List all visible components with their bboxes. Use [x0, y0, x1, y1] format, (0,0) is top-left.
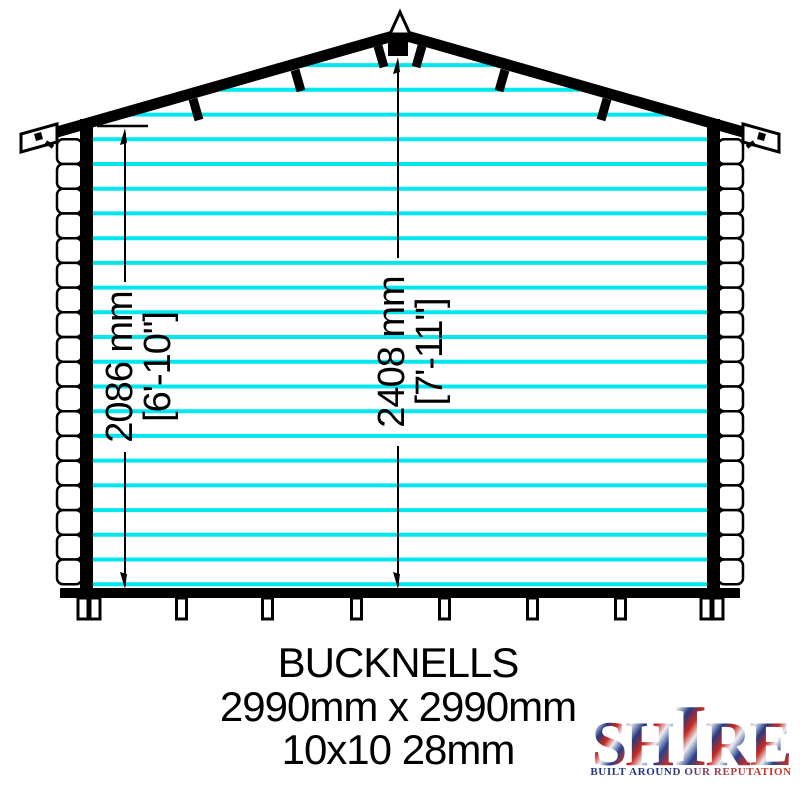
foot — [440, 598, 450, 619]
finial — [390, 12, 410, 34]
log-end — [57, 535, 82, 560]
log-end — [718, 510, 743, 535]
log-end — [718, 288, 743, 313]
log-end — [718, 461, 743, 486]
foot — [90, 598, 100, 619]
product-name: BUCKNELLS — [0, 641, 796, 685]
log-end — [718, 362, 743, 387]
log-end — [57, 164, 82, 189]
log-ends-left — [57, 139, 82, 584]
log-end — [718, 387, 743, 412]
log-end — [718, 535, 743, 560]
caption-block: BUCKNELLS 2990mm x 2990mm 10x10 28mm — [0, 641, 796, 772]
log-end — [718, 312, 743, 337]
barge-board-left — [21, 124, 57, 152]
log-end — [718, 214, 743, 239]
rafter-ticks — [193, 46, 607, 120]
ridge-height-label-mm: 2408 mm — [371, 276, 413, 427]
foot — [177, 598, 187, 619]
foot — [701, 598, 711, 619]
log-end — [718, 411, 743, 436]
log-end — [718, 189, 743, 214]
log-end — [57, 560, 82, 585]
foot — [78, 598, 88, 619]
log-end — [718, 139, 743, 164]
product-size-metric: 2990mm x 2990mm — [0, 685, 796, 729]
log-end — [57, 510, 82, 535]
log-end — [57, 189, 82, 214]
wall-height-label-imperial: [6'-10"] — [137, 312, 179, 422]
log-end — [718, 238, 743, 263]
corner-post-right — [707, 119, 720, 592]
log-end — [718, 263, 743, 288]
corner-post-left — [80, 119, 93, 592]
barge-board-right — [743, 124, 779, 152]
wall-height-label-mm: 2086 mm — [99, 291, 141, 442]
log-end — [57, 436, 82, 461]
log-end — [57, 485, 82, 510]
foot — [352, 598, 362, 619]
log-end — [57, 263, 82, 288]
foundation-feet — [78, 598, 723, 619]
foot — [528, 598, 538, 619]
log-end — [718, 560, 743, 585]
dimension-wall-height: 2086 mm [6'-10"] — [97, 126, 179, 589]
foot — [713, 598, 723, 619]
log-end — [57, 139, 82, 164]
log-end — [57, 288, 82, 313]
log-end — [718, 164, 743, 189]
base-plate — [60, 588, 740, 598]
log-end — [57, 238, 82, 263]
log-end — [57, 312, 82, 337]
foot — [616, 598, 626, 619]
ridge-height-label-imperial: [7'-11"] — [409, 298, 451, 405]
log-end — [57, 337, 82, 362]
log-end — [718, 436, 743, 461]
log-end — [57, 411, 82, 436]
ridge-beam — [388, 33, 408, 56]
drawing-page: 2086 mm [6'-10"] 2408 mm [7'-11"] BUCKNE… — [0, 0, 800, 800]
log-end — [57, 387, 82, 412]
foot — [263, 598, 273, 619]
log-end — [718, 485, 743, 510]
log-ends-right — [718, 139, 743, 584]
log-end — [57, 214, 82, 239]
product-size-nominal: 10x10 28mm — [0, 728, 796, 772]
log-end — [57, 461, 82, 486]
log-end — [718, 337, 743, 362]
log-end — [57, 362, 82, 387]
